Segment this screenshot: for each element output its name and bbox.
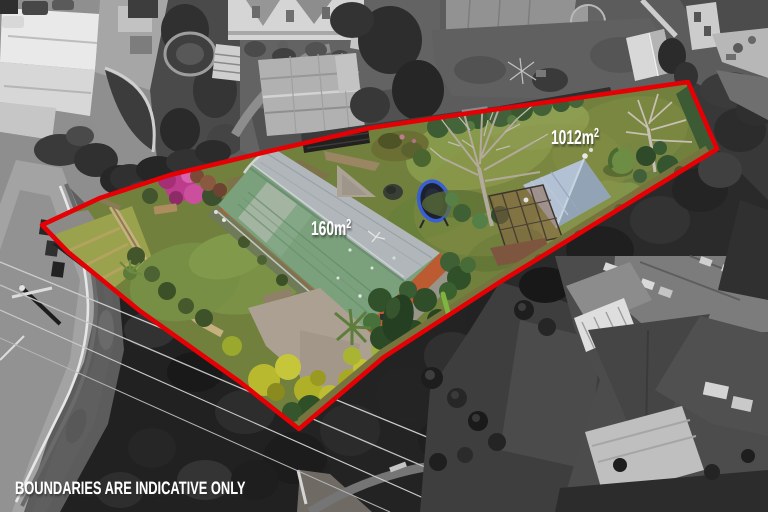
svg-text:160m2: 160m2 bbox=[311, 216, 351, 240]
svg-text:BOUNDARIES ARE INDICATIVE ONLY: BOUNDARIES ARE INDICATIVE ONLY bbox=[15, 478, 245, 498]
svg-text:1012m2: 1012m2 bbox=[551, 125, 599, 149]
